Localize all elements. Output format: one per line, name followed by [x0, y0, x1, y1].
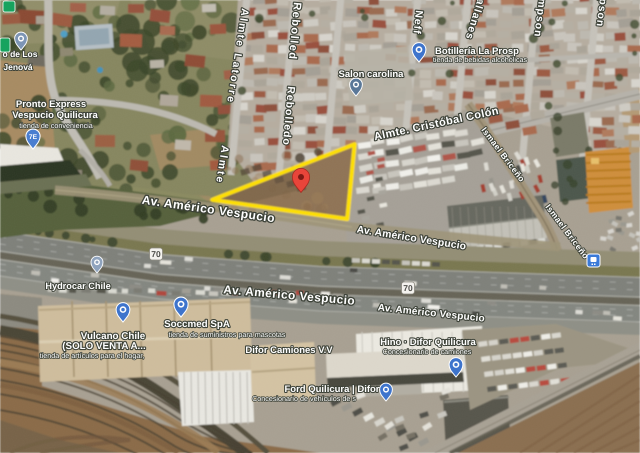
svg-text:tienda de artículos para el ho: tienda de artículos para el hogar, [40, 351, 145, 360]
svg-text:Vespucio Quilicura: Vespucio Quilicura [12, 110, 98, 121]
svg-text:Concesionario de camiones: Concesionario de camiones [383, 347, 472, 356]
svg-text:tienda de conveniencia: tienda de conveniencia [19, 121, 93, 130]
svg-text:Soccmed SpA: Soccmed SpA [164, 319, 230, 330]
svg-text:Neff: Neff [410, 10, 424, 36]
svg-text:70: 70 [151, 249, 161, 259]
svg-text:Hydrocar Chile: Hydrocar Chile [45, 281, 110, 291]
svg-text:tienda de suministros para mas: tienda de suministros para mascotas [168, 330, 285, 339]
svg-text:Difor Camiones V.V: Difor Camiones V.V [245, 345, 333, 356]
svg-text:Concesionario de vehículos de: Concesionario de vehículos de s [252, 394, 356, 403]
svg-text:7E: 7E [29, 134, 37, 141]
svg-text:Pronto Express: Pronto Express [16, 99, 86, 110]
svg-text:70: 70 [403, 283, 413, 293]
svg-text:Salon carolina: Salon carolina [339, 69, 405, 80]
svg-text:Jenová: Jenová [3, 62, 33, 72]
svg-text:tienda de bebidas alcohólicas: tienda de bebidas alcohólicas [433, 55, 528, 64]
